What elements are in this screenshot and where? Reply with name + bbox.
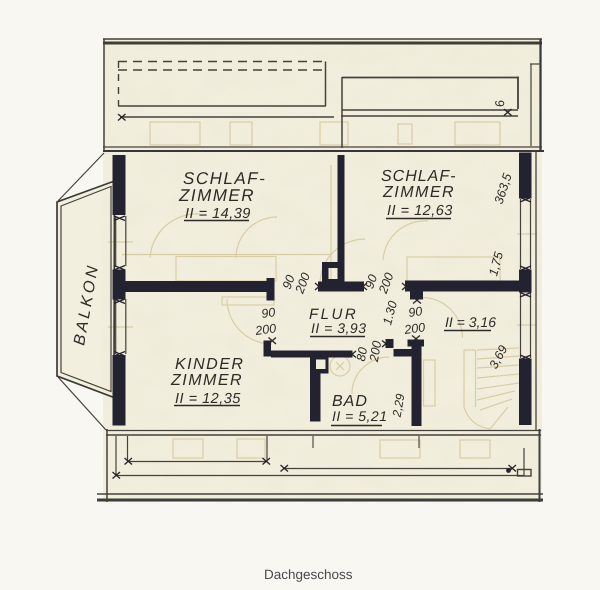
svg-text:Dachgeschoss: Dachgeschoss	[264, 567, 353, 582]
svg-text:90: 90	[407, 304, 423, 320]
svg-text:90: 90	[260, 305, 276, 321]
svg-text:II = 12,35: II = 12,35	[175, 391, 241, 407]
svg-text:II = 14,39: II = 14,39	[185, 206, 251, 222]
svg-text:KINDER: KINDER	[175, 356, 244, 373]
svg-text:II = 5,21: II = 5,21	[332, 408, 387, 424]
svg-text:ZIMMER: ZIMMER	[382, 184, 455, 201]
svg-text:ZIMMER: ZIMMER	[170, 372, 243, 389]
svg-text:II = 3,93: II = 3,93	[311, 320, 366, 336]
svg-text:II = 12,63: II = 12,63	[387, 203, 453, 219]
svg-text:II = 3,16: II = 3,16	[445, 314, 496, 330]
svg-text:ZIMMER: ZIMMER	[178, 186, 255, 205]
svg-text:SCHLAF-: SCHLAF-	[381, 168, 456, 185]
